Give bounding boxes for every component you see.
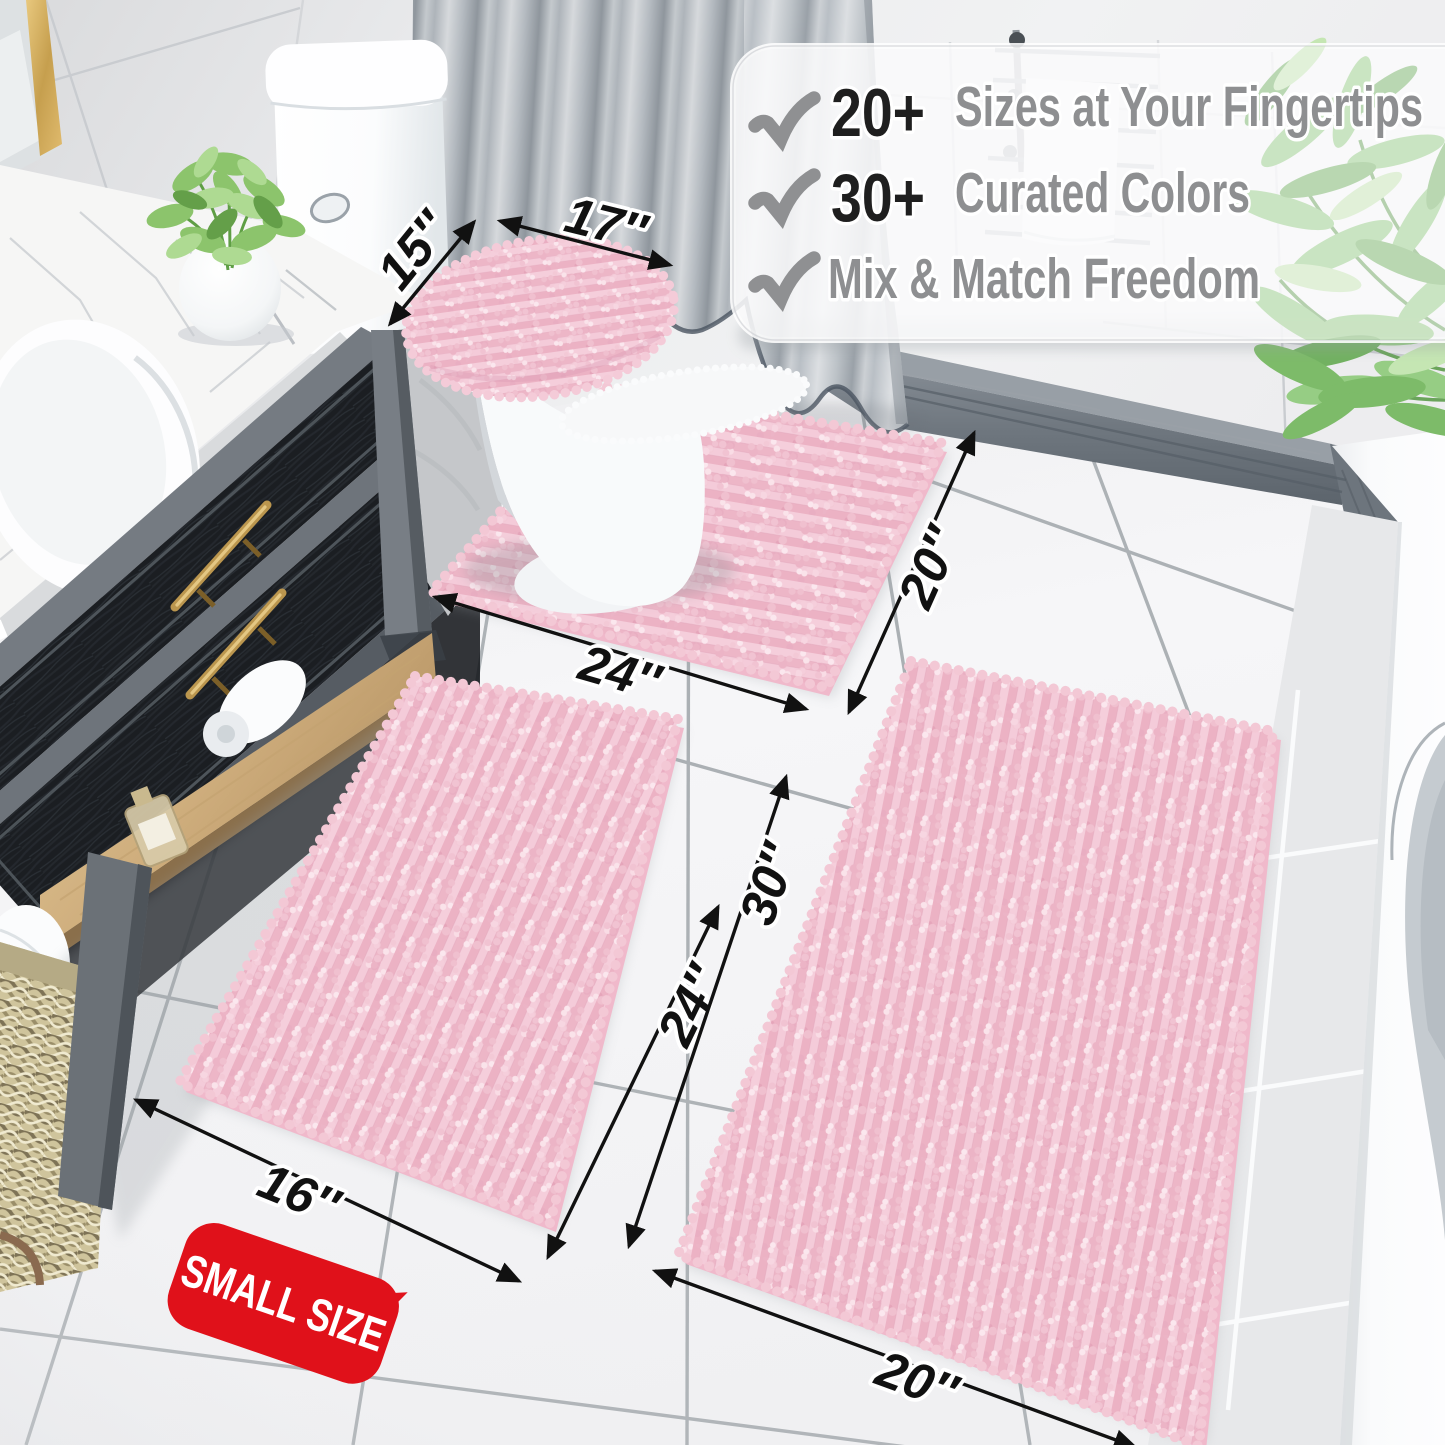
svg-text:30+: 30+ bbox=[831, 160, 925, 236]
svg-text:Mix & Match Freedom: Mix & Match Freedom bbox=[828, 247, 1260, 311]
svg-text:Curated Colors: Curated Colors bbox=[955, 161, 1250, 225]
svg-text:20+: 20+ bbox=[831, 75, 925, 151]
svg-text:Sizes at Your Fingertips: Sizes at Your Fingertips bbox=[955, 75, 1423, 139]
